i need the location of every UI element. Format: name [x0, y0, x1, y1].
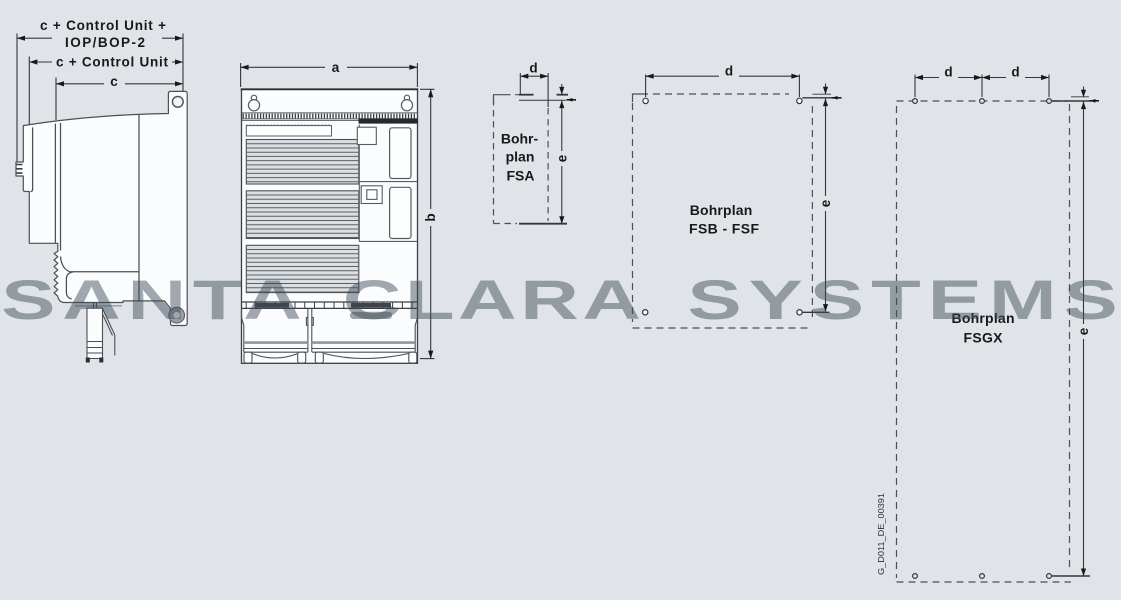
svg-text:FSB - FSF: FSB - FSF [689, 221, 759, 237]
svg-text:SYSTEMS: SYSTEMS [687, 268, 1117, 331]
svg-text:e: e [818, 199, 833, 207]
svg-text:Bohr-: Bohr- [501, 131, 539, 147]
svg-text:d: d [529, 61, 537, 76]
svg-text:c: c [110, 74, 118, 89]
svg-text:SANTA: SANTA [1, 268, 301, 331]
svg-text:c + Control Unit +: c + Control Unit + [40, 18, 166, 33]
svg-text:c + Control Unit: c + Control Unit [56, 55, 169, 70]
svg-text:FSGX: FSGX [964, 330, 1004, 346]
svg-text:b: b [423, 213, 438, 221]
svg-text:e: e [554, 154, 569, 162]
svg-text:d: d [944, 65, 952, 80]
svg-text:d: d [725, 64, 733, 79]
svg-text:G_D011_DE_00391: G_D011_DE_00391 [877, 492, 886, 575]
svg-text:a: a [332, 60, 340, 75]
svg-text:FSA: FSA [507, 168, 535, 184]
svg-text:IOP/BOP-2: IOP/BOP-2 [65, 35, 145, 50]
svg-text:plan: plan [506, 149, 535, 165]
svg-text:CLARA: CLARA [343, 268, 641, 331]
svg-text:d: d [1011, 65, 1019, 80]
svg-text:Bohrplan: Bohrplan [690, 202, 753, 218]
